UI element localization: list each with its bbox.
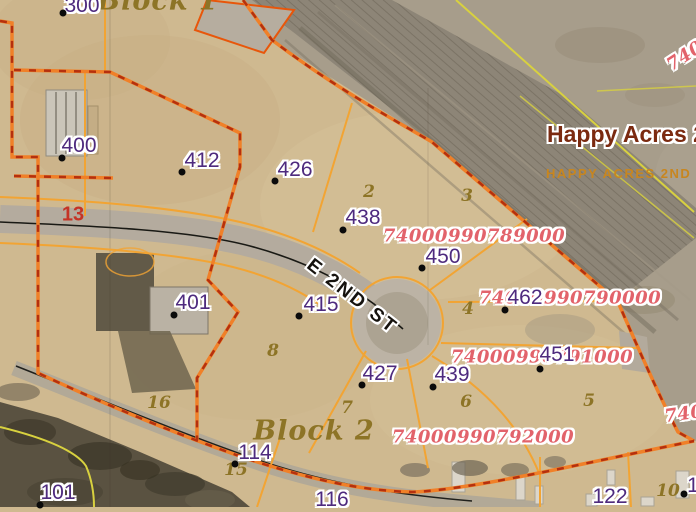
address-label: 462 <box>507 286 542 310</box>
address-point <box>296 313 303 320</box>
lot-number-label: 4 <box>462 299 474 319</box>
lot-number-label: 8 <box>267 341 279 361</box>
parcel-id-label: 74000990792000 <box>392 427 574 448</box>
highway-number-label: 13 <box>62 204 84 227</box>
address-point <box>537 366 544 373</box>
parcel-id-label-partial: 740 <box>663 401 696 427</box>
address-label: 114 <box>238 441 271 465</box>
block-label: Block 1 <box>97 0 218 17</box>
address-point <box>419 265 426 272</box>
lot-number-label: 2 <box>363 182 375 202</box>
parcel-id-label: 74000990790000 <box>479 288 661 309</box>
address-label: 401 <box>175 291 210 315</box>
address-point <box>171 312 178 319</box>
address-label: 426 <box>277 158 312 182</box>
address-label: 300 <box>64 0 99 18</box>
address-point <box>272 178 279 185</box>
address-label: 101 <box>40 481 75 505</box>
address-point <box>681 491 688 498</box>
address-label: 415 <box>303 293 338 317</box>
subdivision-title: Happy Acres 2n <box>547 121 696 148</box>
address-point <box>359 382 366 389</box>
lot-number-label: 16 <box>147 393 171 413</box>
address-point <box>430 384 437 391</box>
address-point <box>232 461 239 468</box>
lot-number-label: 3 <box>461 186 473 206</box>
address-label: 412 <box>184 149 219 173</box>
map-canvas[interactable]: 74000990789000 74000990790000 7400099079… <box>0 0 696 507</box>
address-label: 427 <box>362 362 397 386</box>
school-building-dark <box>96 253 154 331</box>
address-label: 1 <box>687 474 696 498</box>
lot-number-label: 10 <box>656 481 680 501</box>
address-point <box>37 502 44 509</box>
address-label: 400 <box>61 134 96 158</box>
address-label: 116 <box>315 488 348 512</box>
lot-number-label: 6 <box>460 392 472 412</box>
address-label: 438 <box>345 206 380 230</box>
address-point <box>502 307 509 314</box>
address-point <box>59 155 66 162</box>
address-label: 450 <box>425 245 460 269</box>
address-label: 122 <box>592 485 627 509</box>
address-point <box>340 227 347 234</box>
lot-number-label: 5 <box>583 391 595 411</box>
parcel-id-label: 74000990789000 <box>383 226 565 247</box>
subdivision-subtitle: HAPPY ACRES 2ND ADDN <box>546 166 696 181</box>
address-point <box>179 169 186 176</box>
address-label: 439 <box>434 363 469 387</box>
address-label: 451 <box>539 343 574 367</box>
address-point <box>60 10 67 17</box>
